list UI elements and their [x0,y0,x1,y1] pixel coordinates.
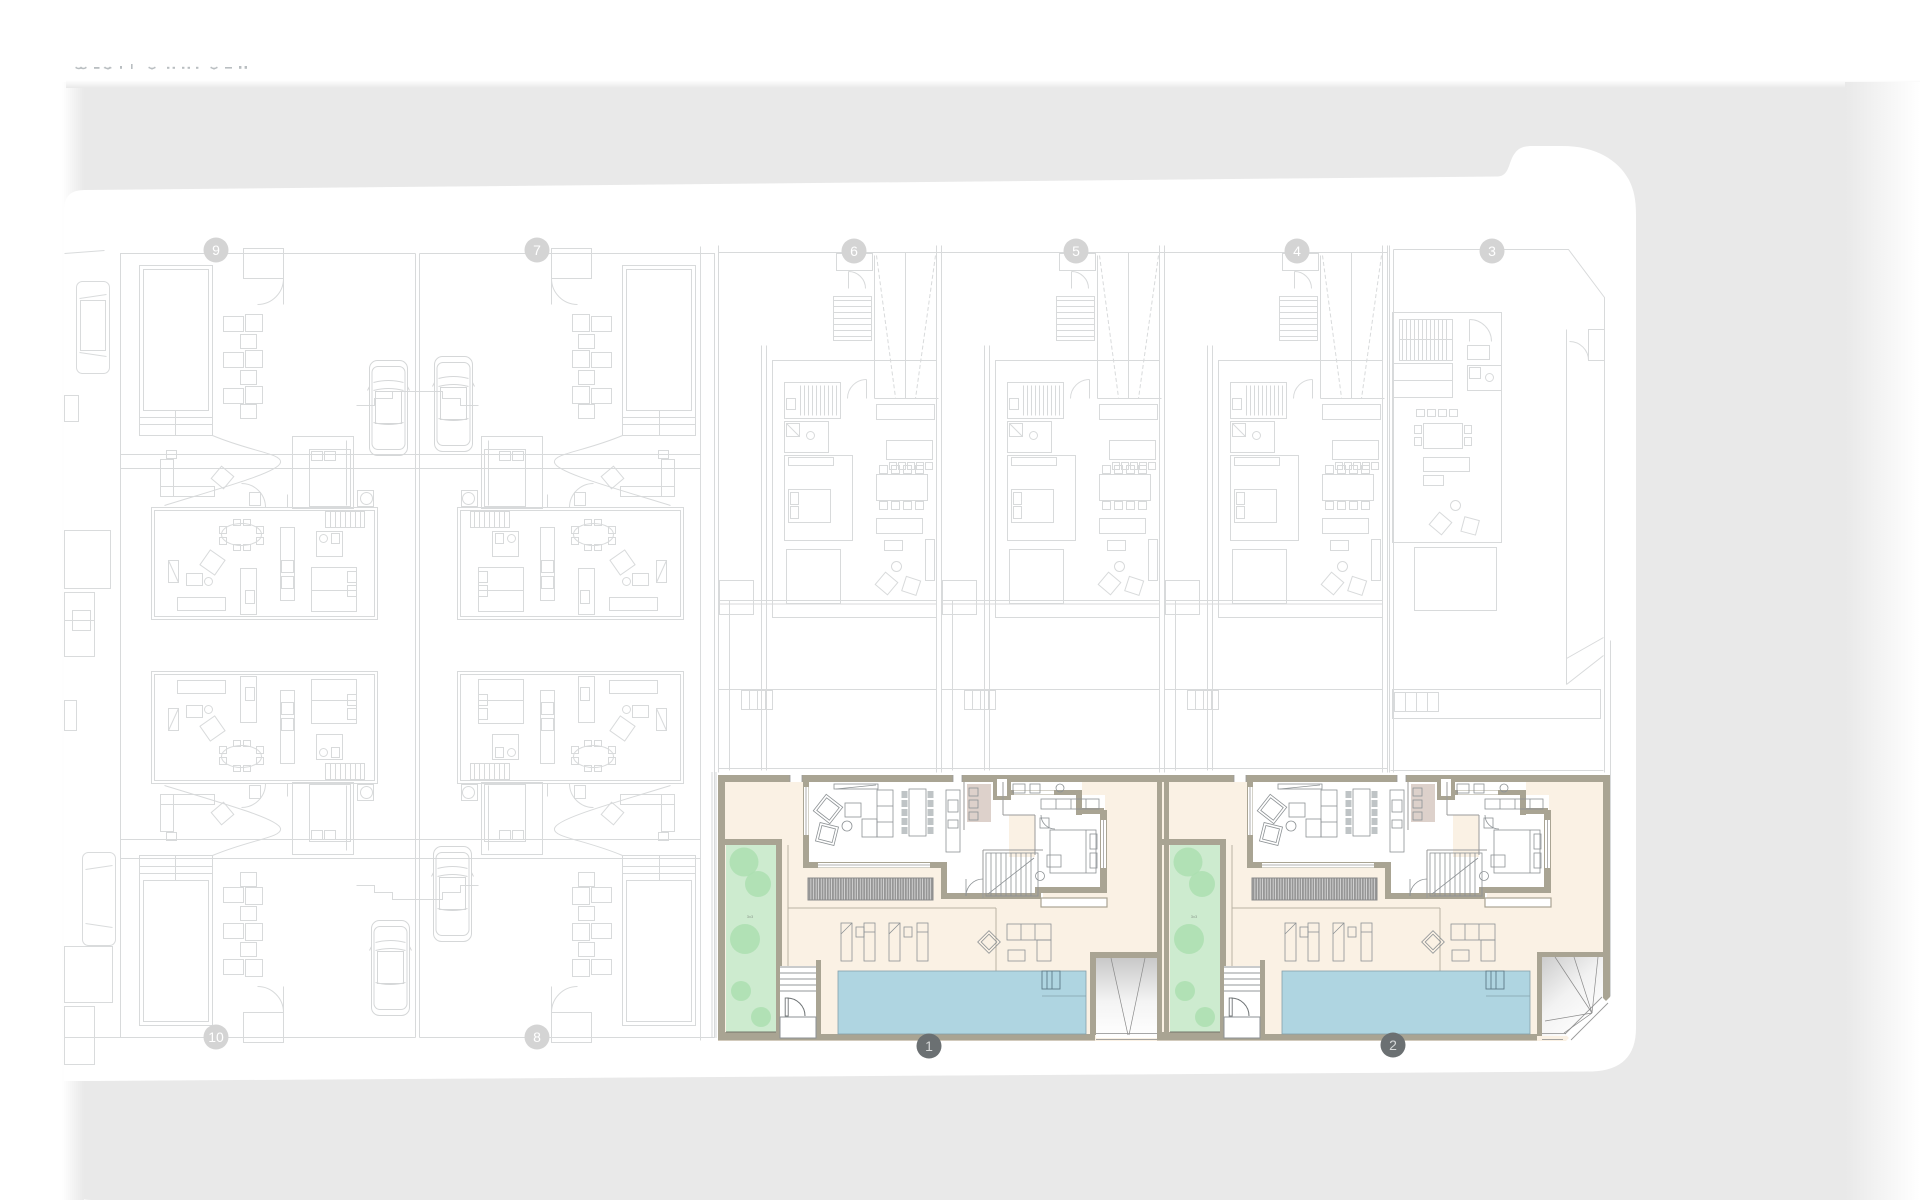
svg-text:8: 8 [533,1029,541,1045]
svg-text:1: 1 [925,1038,933,1054]
svg-text:2: 2 [1389,1037,1397,1053]
svg-text:3: 3 [1488,243,1496,259]
svg-text:4: 4 [1293,243,1301,259]
svg-text:9: 9 [212,242,220,258]
svg-text:7: 7 [533,242,541,258]
svg-text:3x3: 3x3 [747,914,754,919]
svg-text:6: 6 [850,243,858,259]
svg-text:10: 10 [208,1029,224,1045]
svg-text:5: 5 [1072,243,1080,259]
